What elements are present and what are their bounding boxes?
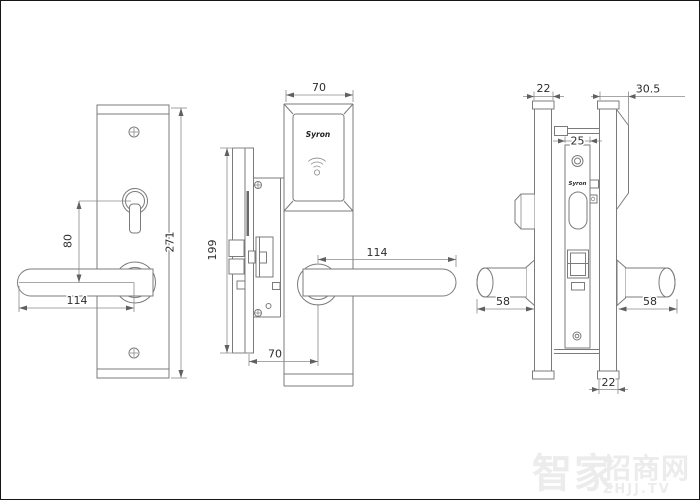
dim-label: 58: [643, 295, 657, 308]
thumbturn: [123, 189, 148, 234]
screw-icon: [255, 310, 262, 317]
cylinder-slot: [569, 192, 587, 229]
latch-bolt: [229, 259, 244, 274]
watermark-cjk-small: 招商网: [603, 452, 690, 485]
watermark-latin: ZHJJ.TV: [603, 482, 671, 497]
brand-logo-text: Syron: [306, 130, 330, 139]
dim-label: 22: [602, 376, 616, 389]
exterior-handle: [298, 264, 457, 305]
screw-icon: [129, 348, 139, 358]
dim-label: 70: [268, 348, 282, 361]
screw-icon: [129, 127, 139, 137]
interior-plate-side: [533, 101, 555, 379]
exterior-plate: [284, 104, 353, 386]
rfid-wifi-icon: [308, 158, 325, 175]
drawing-canvas: 80 271 114: [0, 0, 700, 500]
screw-icon: [255, 182, 262, 189]
lock-technical-drawing: 80 271 114: [1, 1, 700, 500]
card-reader-panel: Syron: [284, 104, 353, 211]
latch-bolt: [229, 240, 244, 257]
exterior-plate-side: [598, 101, 629, 379]
interior-front-view: 80 271 114: [18, 105, 188, 378]
dim-faceplate-width: 25: [553, 135, 602, 148]
dim-label: 70: [312, 81, 326, 94]
dim-label: 30.5: [636, 83, 661, 96]
thumbturn-side: [515, 194, 535, 229]
strike-tab: [590, 180, 599, 188]
mortise-faceplate-front: Syron: [554, 145, 599, 354]
side-section-view: Syron: [477, 82, 685, 394]
dim-label: 80: [62, 234, 75, 248]
reader-housing-profile: [617, 110, 629, 209]
faceplate-slot: [247, 191, 250, 236]
dim-interior-handle-projection: 58: [477, 295, 534, 314]
brand-logo-text: Syron: [569, 181, 587, 187]
dim-label: 114: [67, 294, 88, 307]
dim-label: 114: [367, 246, 388, 259]
dim-interior-overall-height: 271: [164, 108, 188, 378]
dim-label: 22: [537, 82, 551, 95]
exterior-front-view: Syron 70 199: [206, 81, 456, 386]
dim-exterior-plate-width: 70: [286, 81, 353, 102]
dim-label: 271: [164, 232, 177, 253]
dim-label: 58: [496, 295, 510, 308]
dim-exterior-handle-length: 114: [318, 246, 456, 267]
dim-exterior-plate-depth: 30.5: [591, 83, 685, 126]
dim-label: 199: [206, 240, 219, 261]
mortise-lock-body: [229, 148, 284, 353]
deadbolt-peg: [237, 281, 245, 289]
dim-label: 25: [571, 135, 585, 148]
watermark: 智家 招商网 ZHJJ.TV: [532, 451, 690, 497]
interior-plate: [97, 105, 169, 378]
dim-interior-plate-depth-top: 22: [523, 82, 564, 100]
dim-interior-plate-depth-bottom: 22: [589, 376, 628, 394]
dim-exterior-handle-projection: 58: [619, 295, 678, 314]
